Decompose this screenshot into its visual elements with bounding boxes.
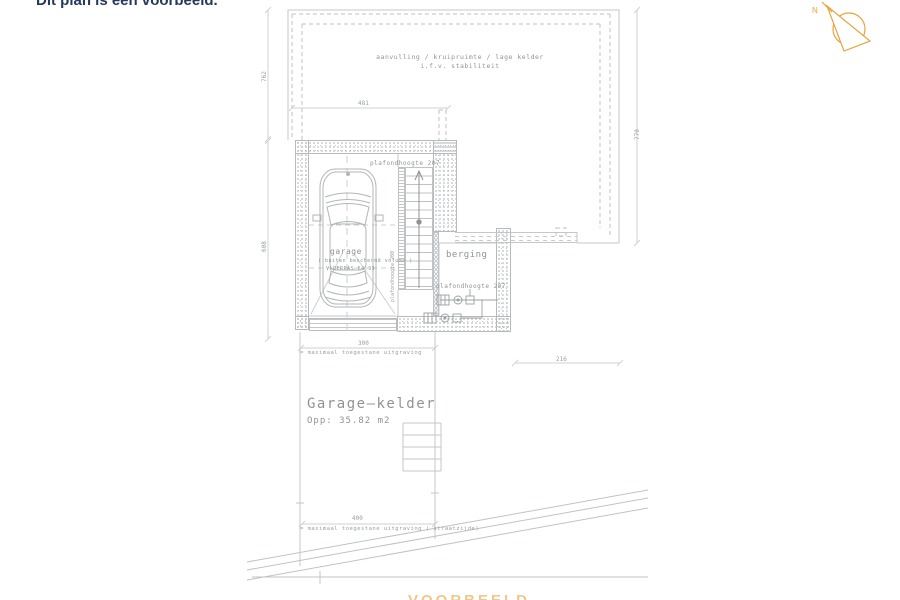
street-note: = maximaal toegestane uitgraving ( straa…: [300, 526, 479, 532]
interior-edges: [309, 154, 496, 316]
garage-floor-note: VLOERPAS 64.93: [326, 266, 375, 272]
berging-ceiling-note: plafondhoogte 207: [436, 283, 506, 290]
dim-crawl-right: 770: [634, 129, 641, 140]
dimension-lines: [265, 7, 640, 527]
street-lines: [247, 490, 648, 584]
plumbing-symbols: [424, 289, 498, 323]
dim-crawl-top: 481: [358, 100, 369, 107]
room-summary-area: Opp: 35.82 m2: [307, 416, 390, 426]
car-top-view: [313, 169, 383, 307]
dim-excavation-width: 300: [358, 340, 369, 347]
stairwell-ceiling-note: plafondhoogte 200: [390, 251, 396, 302]
dim-berging-width: 216: [556, 356, 567, 363]
garage-room-label: garage: [330, 247, 362, 256]
interior-guide-lines: [309, 156, 398, 332]
dim-crawl-left: 762: [261, 71, 268, 82]
bottom-watermark: VOORBEELD: [408, 592, 530, 600]
room-summary-title: Garage—kelder: [307, 396, 436, 412]
plan-linework: N: [0, 0, 900, 600]
berging-room-label: berging: [446, 250, 487, 260]
dimension-ticks: [265, 7, 640, 527]
stair-arrow: [415, 171, 423, 288]
dim-street-width: 400: [352, 515, 363, 522]
crawlspace-label-line1: aanvulling / kruipruimte / lage kelder: [340, 53, 580, 61]
crawlspace-label-line2: i.f.v. stabiliteit: [340, 62, 580, 70]
floor-plan-page: Dit plan is een voorbeeld.: [0, 0, 900, 600]
garage-volume-note: ( buiten beschermd volume ): [318, 258, 413, 264]
north-arrow-icon: N: [812, 2, 870, 51]
excavation-note: = maximaal toegestane uitgraving: [300, 350, 422, 356]
foundation-dashed-lines: [292, 14, 610, 236]
crawlspace-boundary: [288, 10, 619, 243]
north-label: N: [812, 6, 818, 15]
dim-garage-side: 608: [261, 241, 268, 252]
garage-ceiling-note: plafondhoogte 207: [370, 160, 440, 167]
